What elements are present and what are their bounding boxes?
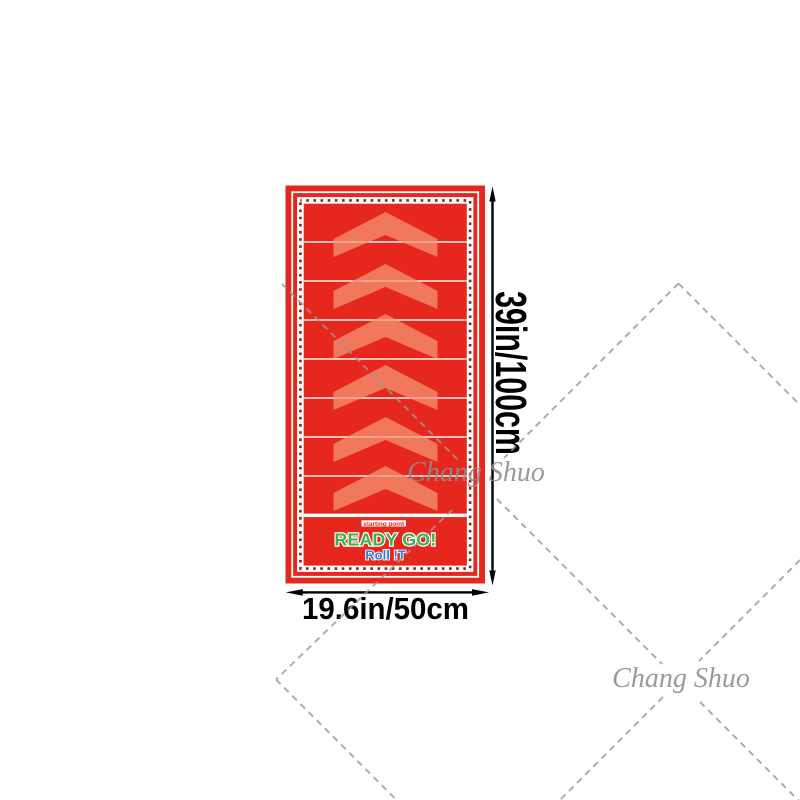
svg-text:READY GO!: READY GO! [334,530,436,550]
svg-text:Chang Shuo: Chang Shuo [407,457,545,488]
svg-text:19.6in/50cm: 19.6in/50cm [302,592,469,626]
svg-text:39in/100cm: 39in/100cm [486,291,535,455]
svg-text:Chang Shuo: Chang Shuo [612,663,750,694]
svg-text:starting point: starting point [363,521,405,528]
